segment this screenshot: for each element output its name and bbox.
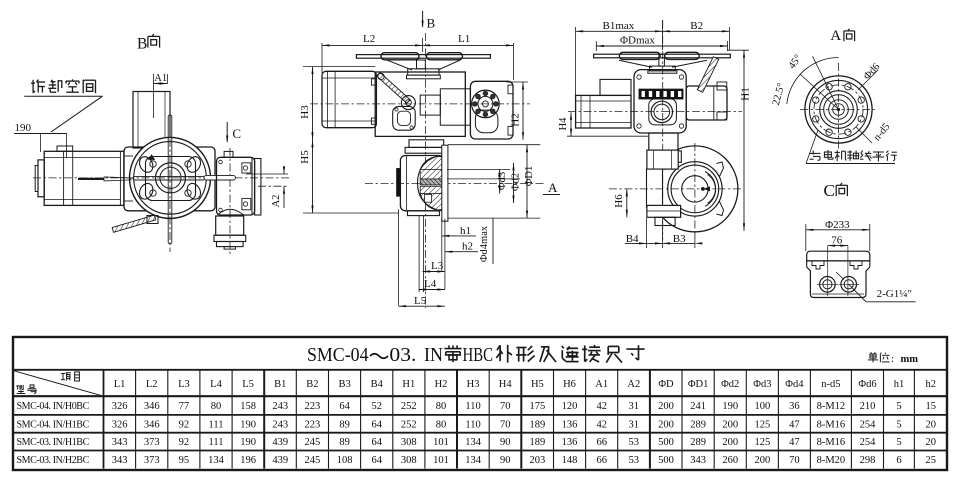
svg-text:42: 42 <box>596 401 607 412</box>
svg-text:148: 148 <box>562 455 578 466</box>
svg-text:L1: L1 <box>458 33 470 45</box>
svg-text:245: 245 <box>305 437 321 448</box>
svg-text:L2: L2 <box>363 33 375 45</box>
svg-text:243: 243 <box>272 401 288 412</box>
svg-text:70: 70 <box>500 401 511 412</box>
svg-text:343: 343 <box>690 455 706 466</box>
svg-text:200: 200 <box>658 401 674 412</box>
svg-text:95: 95 <box>179 455 190 466</box>
svg-text:15: 15 <box>925 401 936 412</box>
svg-text:20: 20 <box>925 419 936 430</box>
svg-text:175: 175 <box>530 401 546 412</box>
svg-text:100: 100 <box>755 401 771 412</box>
svg-text:8-M20: 8-M20 <box>817 455 846 466</box>
svg-text:90: 90 <box>500 437 511 448</box>
svg-text:5: 5 <box>896 419 901 430</box>
svg-text:B3: B3 <box>338 379 350 390</box>
svg-text:8-M12: 8-M12 <box>817 401 846 412</box>
svg-text:373: 373 <box>144 437 160 448</box>
svg-text:101: 101 <box>433 455 449 466</box>
svg-text:h2: h2 <box>925 379 936 390</box>
svg-text:252: 252 <box>401 401 417 412</box>
svg-text:B1max: B1max <box>603 20 635 32</box>
svg-text:h2: h2 <box>462 241 473 253</box>
svg-text:80: 80 <box>211 401 222 412</box>
svg-text:136: 136 <box>562 437 578 448</box>
svg-text:A: A <box>830 28 841 44</box>
svg-text:439: 439 <box>272 455 288 466</box>
svg-text:C: C <box>824 181 835 200</box>
svg-text:8-M16: 8-M16 <box>817 437 846 448</box>
svg-text:64: 64 <box>339 401 350 412</box>
svg-text:B2: B2 <box>690 20 703 32</box>
svg-text:200: 200 <box>755 455 771 466</box>
svg-text:439: 439 <box>272 437 288 448</box>
svg-text:Φd2: Φd2 <box>721 379 739 390</box>
svg-text:B2: B2 <box>306 379 318 390</box>
svg-text:200: 200 <box>722 419 738 430</box>
svg-text:53: 53 <box>629 455 640 466</box>
svg-text:110: 110 <box>465 419 480 430</box>
svg-text:125: 125 <box>755 437 771 448</box>
svg-text:66: 66 <box>596 437 607 448</box>
svg-text:5: 5 <box>896 401 901 412</box>
svg-text:47: 47 <box>789 419 800 430</box>
svg-text:ΦD1: ΦD1 <box>524 166 535 187</box>
svg-text:H4: H4 <box>499 379 513 390</box>
svg-text:SMC-04. IN/H1BC: SMC-04. IN/H1BC <box>17 419 90 430</box>
svg-text:47: 47 <box>789 437 800 448</box>
svg-text:h1: h1 <box>460 225 471 237</box>
svg-text:223: 223 <box>305 419 321 430</box>
svg-text:H5: H5 <box>531 379 544 390</box>
svg-text:223: 223 <box>305 401 321 412</box>
svg-text::: : <box>891 353 894 365</box>
svg-text:L2: L2 <box>146 379 158 390</box>
svg-text:298: 298 <box>860 455 876 466</box>
svg-text:210: 210 <box>860 401 876 412</box>
svg-text:Φd3: Φd3 <box>753 379 771 390</box>
svg-text:31: 31 <box>629 401 640 412</box>
svg-text:125: 125 <box>755 419 771 430</box>
svg-text:308: 308 <box>401 455 417 466</box>
svg-text:346: 346 <box>144 401 160 412</box>
svg-text:243: 243 <box>272 419 288 430</box>
svg-text:A: A <box>548 180 558 195</box>
svg-text:89: 89 <box>339 437 350 448</box>
svg-text:245: 245 <box>305 455 321 466</box>
svg-text:52: 52 <box>371 401 382 412</box>
svg-text:500: 500 <box>658 455 674 466</box>
svg-text:190: 190 <box>15 122 32 134</box>
svg-text:80: 80 <box>436 419 447 430</box>
svg-text:134: 134 <box>465 455 482 466</box>
svg-text:108: 108 <box>337 455 353 466</box>
svg-text:HBC: HBC <box>463 344 494 366</box>
svg-text:66: 66 <box>596 455 607 466</box>
svg-text:A2: A2 <box>627 379 640 390</box>
svg-text:92: 92 <box>179 419 190 430</box>
svg-text:90: 90 <box>500 455 511 466</box>
svg-text:SMC-03. IN/H2BC: SMC-03. IN/H2BC <box>17 455 90 466</box>
svg-text:64: 64 <box>371 455 382 466</box>
svg-text:190: 190 <box>240 437 256 448</box>
svg-text:254: 254 <box>860 419 877 430</box>
svg-text:252: 252 <box>401 419 417 430</box>
svg-text:L3: L3 <box>431 260 444 272</box>
svg-text:158: 158 <box>240 401 256 412</box>
svg-text:H1: H1 <box>740 87 752 100</box>
svg-text:L4: L4 <box>424 278 437 290</box>
svg-text:289: 289 <box>690 419 706 430</box>
svg-text:SMC-04. IN/H0BC: SMC-04. IN/H0BC <box>17 401 90 412</box>
svg-text:31: 31 <box>629 419 640 430</box>
svg-text:136: 136 <box>562 419 578 430</box>
svg-text:200: 200 <box>658 419 674 430</box>
svg-text:C: C <box>232 126 241 141</box>
svg-text:373: 373 <box>144 455 160 466</box>
svg-text:200: 200 <box>722 437 738 448</box>
svg-text:343: 343 <box>112 437 128 448</box>
svg-text:B: B <box>427 16 436 31</box>
svg-text:190: 190 <box>240 419 256 430</box>
svg-text:SMC-03. IN/H1BC: SMC-03. IN/H1BC <box>17 437 90 448</box>
svg-text:241: 241 <box>690 401 706 412</box>
svg-text:B: B <box>137 36 147 53</box>
svg-text:h1: h1 <box>894 379 905 390</box>
svg-text:53: 53 <box>629 437 640 448</box>
svg-text:8-M16: 8-M16 <box>817 419 846 430</box>
svg-text:326: 326 <box>112 401 128 412</box>
svg-text:Φd4max: Φd4max <box>479 225 490 262</box>
svg-text:Φ233: Φ233 <box>825 219 850 231</box>
svg-text:A1: A1 <box>595 379 608 390</box>
svg-text:H4: H4 <box>558 117 569 131</box>
svg-text:H2: H2 <box>435 379 448 390</box>
svg-text:20: 20 <box>925 437 936 448</box>
svg-text:134: 134 <box>208 455 225 466</box>
svg-text:190: 190 <box>722 401 738 412</box>
svg-text:ΦDmax: ΦDmax <box>620 35 655 47</box>
svg-text:64: 64 <box>371 419 382 430</box>
svg-text:110: 110 <box>465 401 480 412</box>
svg-text:A2: A2 <box>271 195 282 208</box>
svg-text:L5: L5 <box>242 379 254 390</box>
svg-text:L4: L4 <box>210 379 222 390</box>
svg-text:6: 6 <box>896 455 901 466</box>
svg-text:2-G1¼″: 2-G1¼″ <box>877 288 912 300</box>
svg-text:189: 189 <box>530 437 546 448</box>
svg-text:n-d5: n-d5 <box>821 379 840 390</box>
svg-text:289: 289 <box>690 437 706 448</box>
svg-text:L1: L1 <box>114 379 126 390</box>
svg-text:92: 92 <box>179 437 190 448</box>
svg-text:196: 196 <box>240 455 256 466</box>
svg-text:H3: H3 <box>299 105 311 119</box>
svg-text:111: 111 <box>209 419 224 430</box>
svg-text:H1: H1 <box>402 379 415 390</box>
svg-text:70: 70 <box>500 419 511 430</box>
svg-text:203: 203 <box>530 455 546 466</box>
svg-text:42: 42 <box>596 419 607 430</box>
svg-text:70: 70 <box>789 455 800 466</box>
svg-text:ΦD1: ΦD1 <box>688 379 709 390</box>
svg-text:77: 77 <box>179 401 190 412</box>
svg-text:H5: H5 <box>299 150 311 164</box>
svg-text:Φd6: Φd6 <box>858 379 876 390</box>
svg-text:254: 254 <box>860 437 877 448</box>
svg-text:H3: H3 <box>467 379 480 390</box>
svg-text:Φd2: Φd2 <box>511 173 522 191</box>
svg-text:A1: A1 <box>154 73 167 84</box>
svg-text:5: 5 <box>896 437 901 448</box>
svg-text:36: 36 <box>789 401 800 412</box>
svg-text:B1: B1 <box>274 379 286 390</box>
svg-text:101: 101 <box>433 437 449 448</box>
svg-text:343: 343 <box>112 455 128 466</box>
svg-text:89: 89 <box>339 419 350 430</box>
svg-text:L3: L3 <box>178 379 190 390</box>
svg-text:H6: H6 <box>563 379 576 390</box>
svg-text:308: 308 <box>401 437 417 448</box>
svg-text:L5: L5 <box>414 295 427 307</box>
svg-text:03.: 03. <box>389 344 416 366</box>
svg-text:120: 120 <box>562 401 578 412</box>
svg-text:IN: IN <box>424 344 443 366</box>
svg-text:B4: B4 <box>371 379 384 390</box>
svg-text:64: 64 <box>371 437 382 448</box>
svg-text:260: 260 <box>722 455 738 466</box>
svg-text:SMC-04: SMC-04 <box>307 344 369 366</box>
svg-text:189: 189 <box>530 419 546 430</box>
svg-text:25: 25 <box>925 455 936 466</box>
svg-text:326: 326 <box>112 419 128 430</box>
svg-text:Φd4: Φd4 <box>785 379 804 390</box>
svg-text:80: 80 <box>436 401 447 412</box>
svg-text:134: 134 <box>465 437 482 448</box>
svg-text:H2: H2 <box>510 113 522 126</box>
svg-text:111: 111 <box>209 437 224 448</box>
svg-text:Φd3: Φd3 <box>497 172 508 190</box>
svg-text:H6: H6 <box>613 194 625 208</box>
svg-text:mm: mm <box>901 354 919 365</box>
svg-text:ΦD: ΦD <box>658 379 674 390</box>
svg-text:500: 500 <box>658 437 674 448</box>
svg-text:346: 346 <box>144 419 160 430</box>
